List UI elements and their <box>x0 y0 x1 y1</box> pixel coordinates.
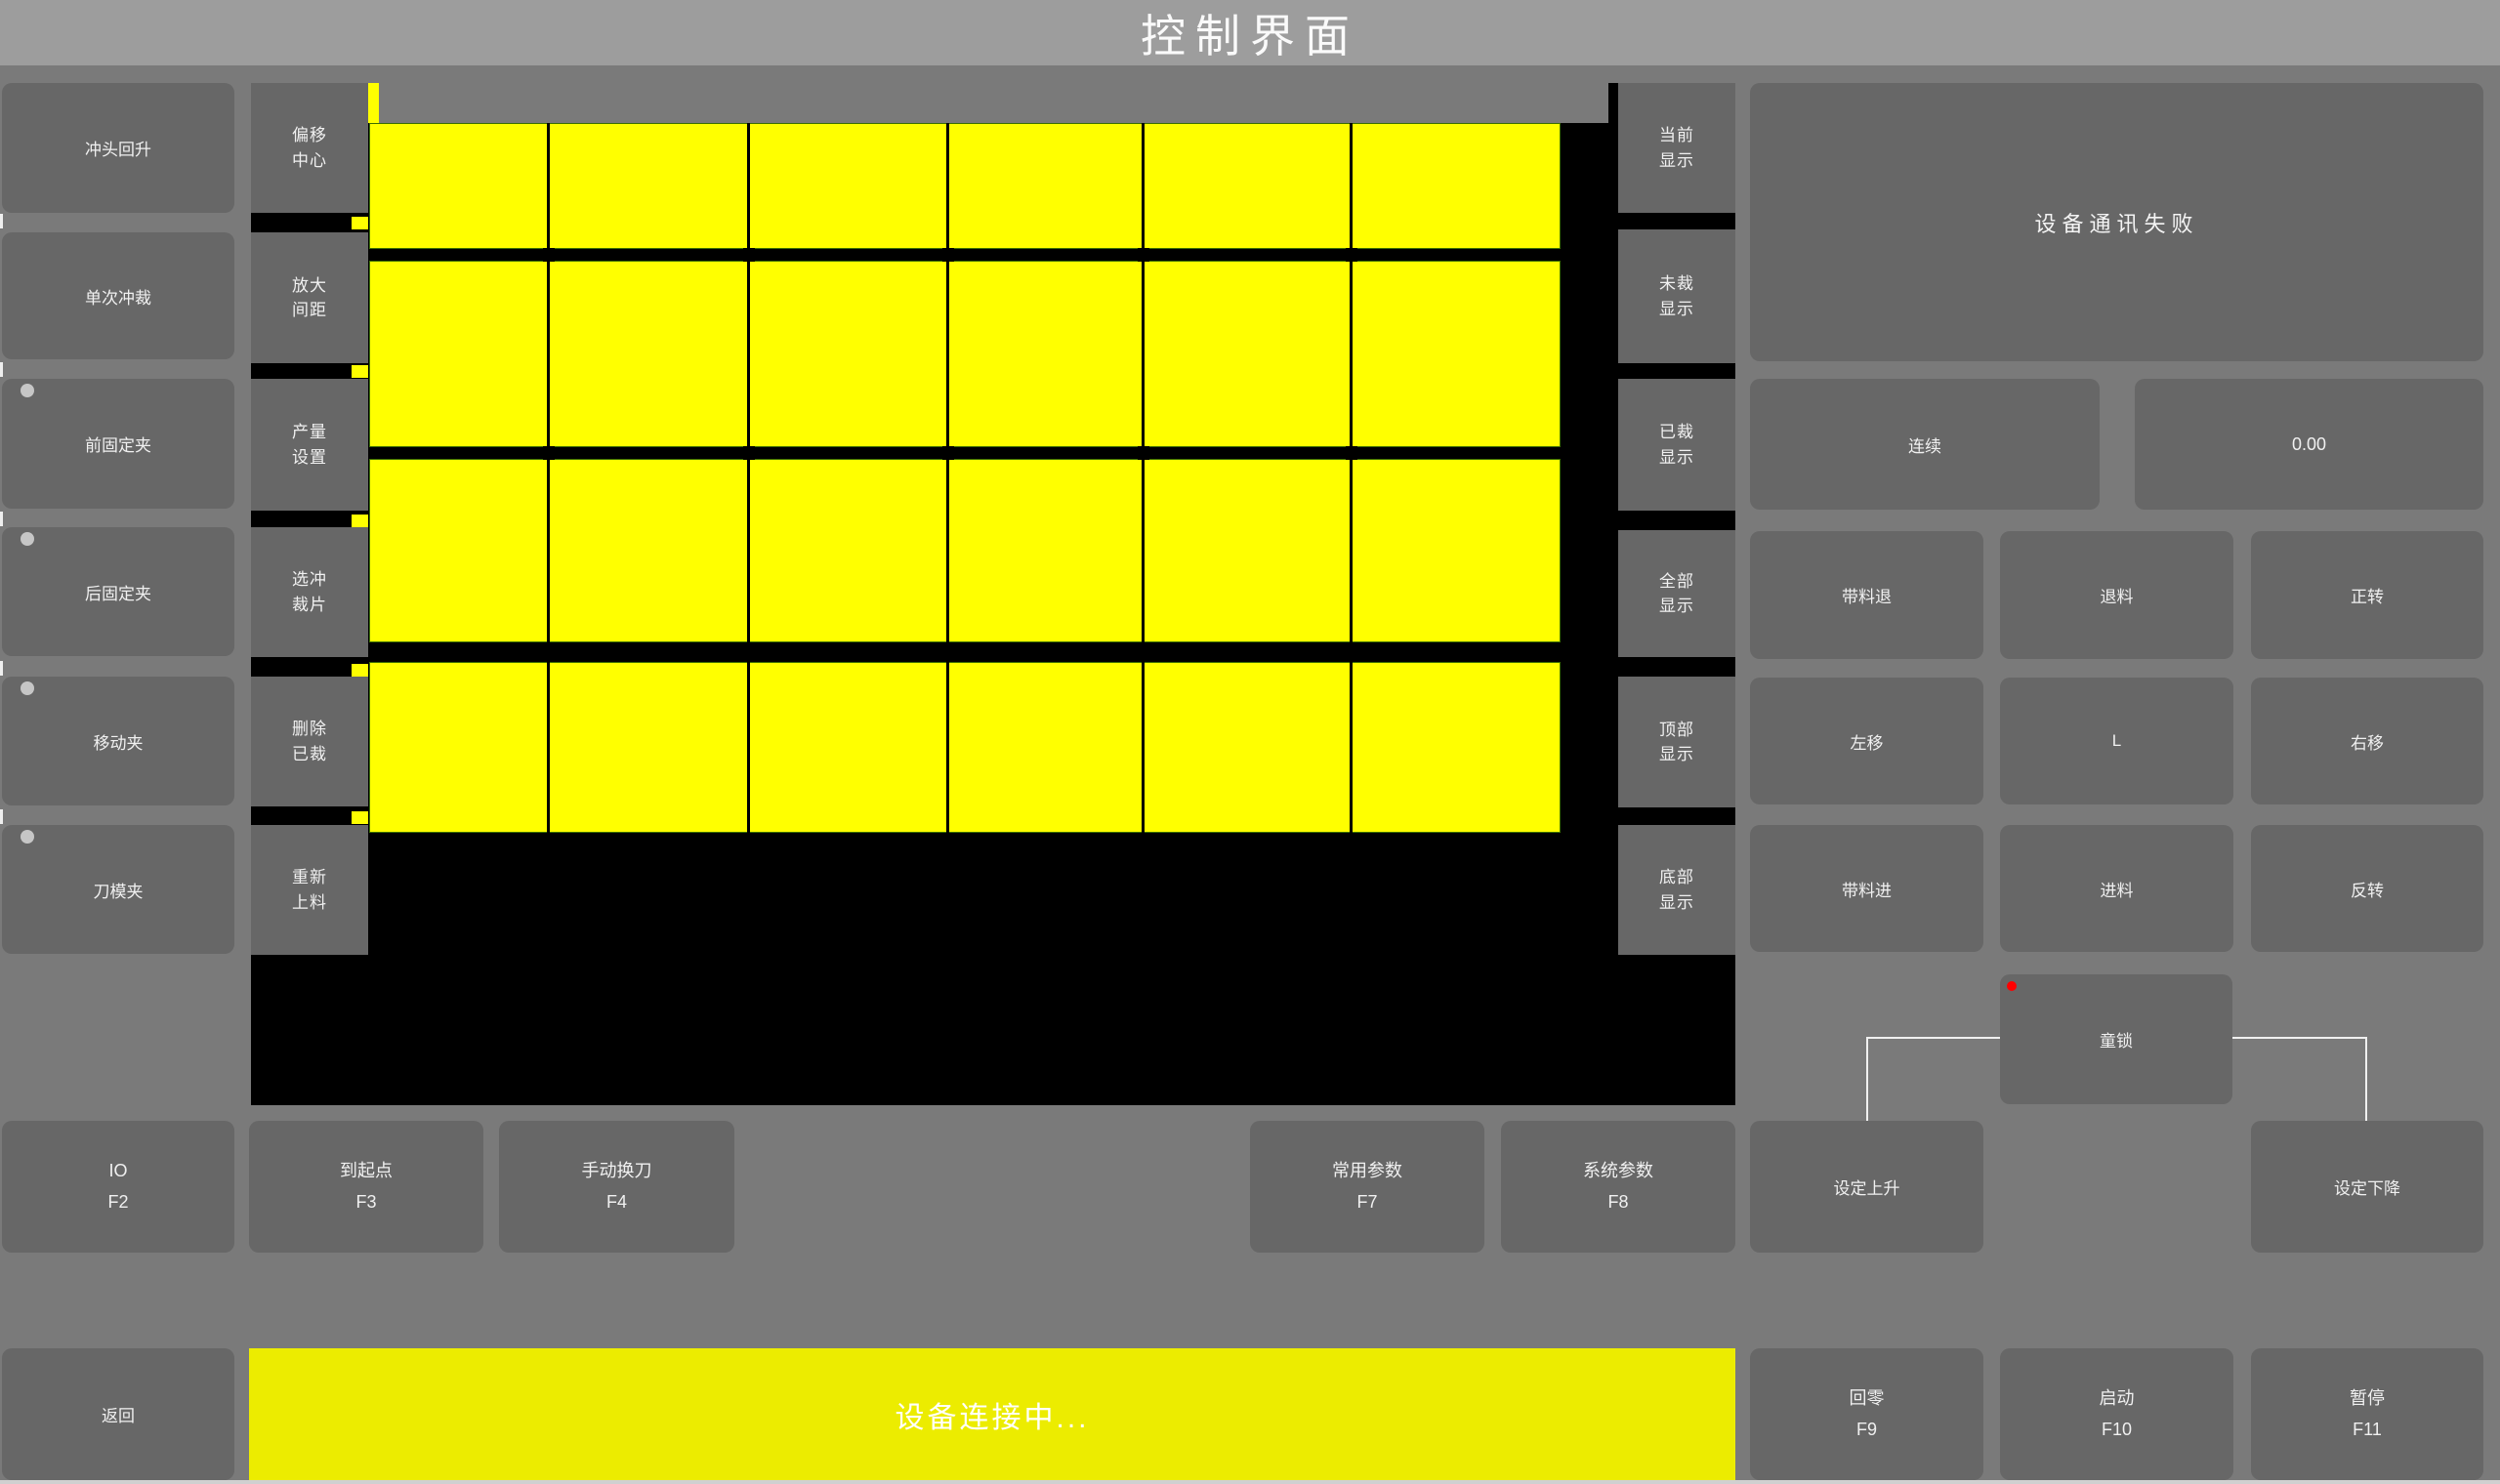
grid-tick <box>543 248 555 262</box>
button-show-uncut[interactable]: 未裁 显示 <box>1618 229 1735 363</box>
button-delete-cut[interactable]: 删除 已裁 <box>251 677 368 806</box>
button-punch-raise[interactable]: 冲头回升 <box>2 83 234 213</box>
status-text: 设备连接中... <box>895 1393 1089 1436</box>
grid-tick <box>1346 248 1357 262</box>
grid-column-separator <box>1142 123 1145 833</box>
button-show-top[interactable]: 顶部 显示 <box>1618 677 1735 807</box>
button-child-lock[interactable]: 童锁 <box>2000 974 2232 1104</box>
button-reverse-rotate[interactable]: 反转 <box>2251 825 2483 952</box>
grid-tick <box>942 248 954 262</box>
button-moving-clamp[interactable]: 移动夹 <box>2 677 234 805</box>
grid-tick <box>1138 446 1149 460</box>
device-message-box: 设备通讯失败 <box>1750 83 2483 361</box>
button-show-all[interactable]: 全部 显示 <box>1618 530 1735 657</box>
grid-tick <box>743 248 755 262</box>
button-label: 退料 <box>2101 583 2134 607</box>
value-display[interactable]: 0.00 <box>2135 379 2483 510</box>
clamp-marker <box>352 515 368 527</box>
button-start-f10[interactable]: 启动 F10 <box>2000 1348 2233 1480</box>
button-io-f2[interactable]: IO F2 <box>2 1121 234 1253</box>
button-label: 当前 显示 <box>1659 123 1694 173</box>
grid-column-separator <box>1350 123 1353 833</box>
edge-tick <box>0 661 3 676</box>
button-label: 设定下降 <box>2334 1175 2400 1199</box>
button-label: 冲头回升 <box>85 136 151 160</box>
button-reload-material[interactable]: 重新 上料 <box>251 825 368 955</box>
button-show-bottom[interactable]: 底部 显示 <box>1618 825 1735 955</box>
button-fkey: F7 <box>1356 1192 1377 1214</box>
button-fkey: F2 <box>107 1192 128 1214</box>
button-center-l[interactable]: L <box>2000 678 2233 804</box>
button-feed-back[interactable]: 带料退 <box>1750 531 1983 659</box>
button-select-piece[interactable]: 选冲 裁片 <box>251 527 368 657</box>
button-label: 常用参数 <box>1332 1161 1402 1182</box>
button-label: 已裁 显示 <box>1659 420 1694 470</box>
button-label: 连续 <box>1908 433 1941 457</box>
button-label: 带料进 <box>1842 877 1892 901</box>
button-label: 返回 <box>102 1402 135 1426</box>
button-front-clamp[interactable]: 前固定夹 <box>2 379 234 509</box>
button-continuous-mode[interactable]: 连续 <box>1750 379 2100 510</box>
button-pause-f11[interactable]: 暂停 F11 <box>2251 1348 2483 1480</box>
button-label: 启动 <box>2100 1388 2135 1410</box>
button-set-rise[interactable]: 设定上升 <box>1750 1121 1983 1253</box>
button-label: 未裁 显示 <box>1659 271 1694 321</box>
edge-tick <box>0 809 3 824</box>
edge-tick <box>0 214 3 228</box>
button-label: 左移 <box>1851 729 1884 754</box>
button-label: 正转 <box>2351 583 2384 607</box>
link-line <box>2365 1037 2367 1121</box>
button-back[interactable]: 返回 <box>2 1348 234 1480</box>
clamp-marker <box>352 811 368 824</box>
button-single-punch[interactable]: 单次冲裁 <box>2 232 234 359</box>
bottom-edge-strip <box>0 1480 2500 1484</box>
button-move-right[interactable]: 右移 <box>2251 678 2483 804</box>
button-die-clamp[interactable]: 刀模夹 <box>2 825 234 954</box>
button-set-fall[interactable]: 设定下降 <box>2251 1121 2483 1253</box>
button-label: 偏移 中心 <box>292 123 327 173</box>
button-fkey: F11 <box>2353 1420 2382 1441</box>
button-to-origin-f3[interactable]: 到起点 F3 <box>249 1121 483 1253</box>
button-load[interactable]: 进料 <box>2000 825 2233 952</box>
button-label: 选冲 裁片 <box>292 567 327 617</box>
grid-tick <box>1138 248 1149 262</box>
grid-column-separator <box>747 123 750 833</box>
value-text: 0.00 <box>2292 434 2326 455</box>
device-message-text: 设备通讯失败 <box>2034 207 2198 238</box>
button-label: 童锁 <box>2100 1027 2133 1051</box>
button-rear-clamp[interactable]: 后固定夹 <box>2 527 234 656</box>
link-line <box>1866 1037 1868 1121</box>
button-unload[interactable]: 退料 <box>2000 531 2233 659</box>
clamp-marker <box>352 664 368 677</box>
grid-tick <box>1346 446 1357 460</box>
button-label: L <box>2112 731 2121 751</box>
sheet-grid <box>369 123 1561 833</box>
button-label: 放大 间距 <box>292 273 327 323</box>
button-label: 进料 <box>2101 877 2134 901</box>
state-indicator-dot <box>21 532 34 546</box>
button-label: 右移 <box>2351 729 2384 754</box>
button-label: 前固定夹 <box>85 432 151 456</box>
clamp-marker <box>352 365 368 378</box>
control-screen: 控制界面 <box>0 0 2500 1484</box>
button-fkey: F4 <box>606 1192 627 1214</box>
button-label: 产量 设置 <box>292 420 327 470</box>
button-label: 移动夹 <box>94 729 144 754</box>
button-move-left[interactable]: 左移 <box>1750 678 1983 804</box>
button-label: 系统参数 <box>1583 1161 1653 1182</box>
grid-column-separator <box>547 123 550 833</box>
title-bar: 控制界面 <box>0 0 2500 65</box>
button-fkey: F10 <box>2102 1420 2132 1441</box>
button-label: 刀模夹 <box>94 878 144 902</box>
cut-layout-canvas[interactable] <box>251 83 1735 1105</box>
button-label: 删除 已裁 <box>292 717 327 766</box>
button-label: 重新 上料 <box>292 865 327 915</box>
button-label: 回零 <box>1850 1388 1885 1410</box>
state-indicator-dot <box>21 384 34 397</box>
status-bar: 设备连接中... <box>249 1348 1735 1480</box>
button-label: 暂停 <box>2350 1388 2385 1410</box>
edge-tick <box>0 362 3 377</box>
button-label: 后固定夹 <box>85 580 151 604</box>
button-label: 反转 <box>2351 877 2384 901</box>
button-label: IO <box>108 1161 127 1182</box>
grid-tick <box>543 446 555 460</box>
button-manual-tool-change-f4[interactable]: 手动换刀 F4 <box>499 1121 734 1253</box>
button-fkey: F8 <box>1607 1192 1628 1214</box>
button-home-f9[interactable]: 回零 F9 <box>1750 1348 1983 1480</box>
button-fkey: F9 <box>1856 1420 1877 1441</box>
button-show-current[interactable]: 当前 显示 <box>1618 83 1735 213</box>
button-label: 顶部 显示 <box>1659 718 1694 767</box>
button-fkey: F3 <box>355 1192 376 1214</box>
button-label: 手动换刀 <box>582 1161 652 1182</box>
button-forward-rotate[interactable]: 正转 <box>2251 531 2483 659</box>
button-label: 设定上升 <box>1834 1175 1900 1199</box>
button-common-params-f7[interactable]: 常用参数 F7 <box>1250 1121 1484 1253</box>
button-system-params-f8[interactable]: 系统参数 F8 <box>1501 1121 1735 1253</box>
button-yield-setting[interactable]: 产量 设置 <box>251 379 368 511</box>
state-indicator-dot <box>21 681 34 695</box>
sheet-origin-marker <box>367 83 379 123</box>
edge-tick <box>0 512 3 526</box>
clamp-marker <box>352 217 368 229</box>
canvas-top-band <box>379 83 1608 123</box>
grid-tick <box>942 446 954 460</box>
state-indicator-dot <box>21 830 34 844</box>
button-label: 单次冲裁 <box>85 284 151 309</box>
grid-column-separator <box>946 123 949 833</box>
button-label: 到起点 <box>340 1161 393 1182</box>
alert-dot <box>2007 981 2017 991</box>
button-label: 底部 显示 <box>1659 865 1694 915</box>
button-offset-center[interactable]: 偏移 中心 <box>251 83 368 213</box>
button-label: 全部 显示 <box>1659 569 1694 619</box>
button-enlarge-gap[interactable]: 放大 间距 <box>251 232 368 363</box>
grid-tick <box>743 446 755 460</box>
button-label: 带料退 <box>1842 583 1892 607</box>
button-show-cut[interactable]: 已裁 显示 <box>1618 379 1735 511</box>
page-title: 控制界面 <box>1141 1 1359 65</box>
button-feed-in[interactable]: 带料进 <box>1750 825 1983 952</box>
